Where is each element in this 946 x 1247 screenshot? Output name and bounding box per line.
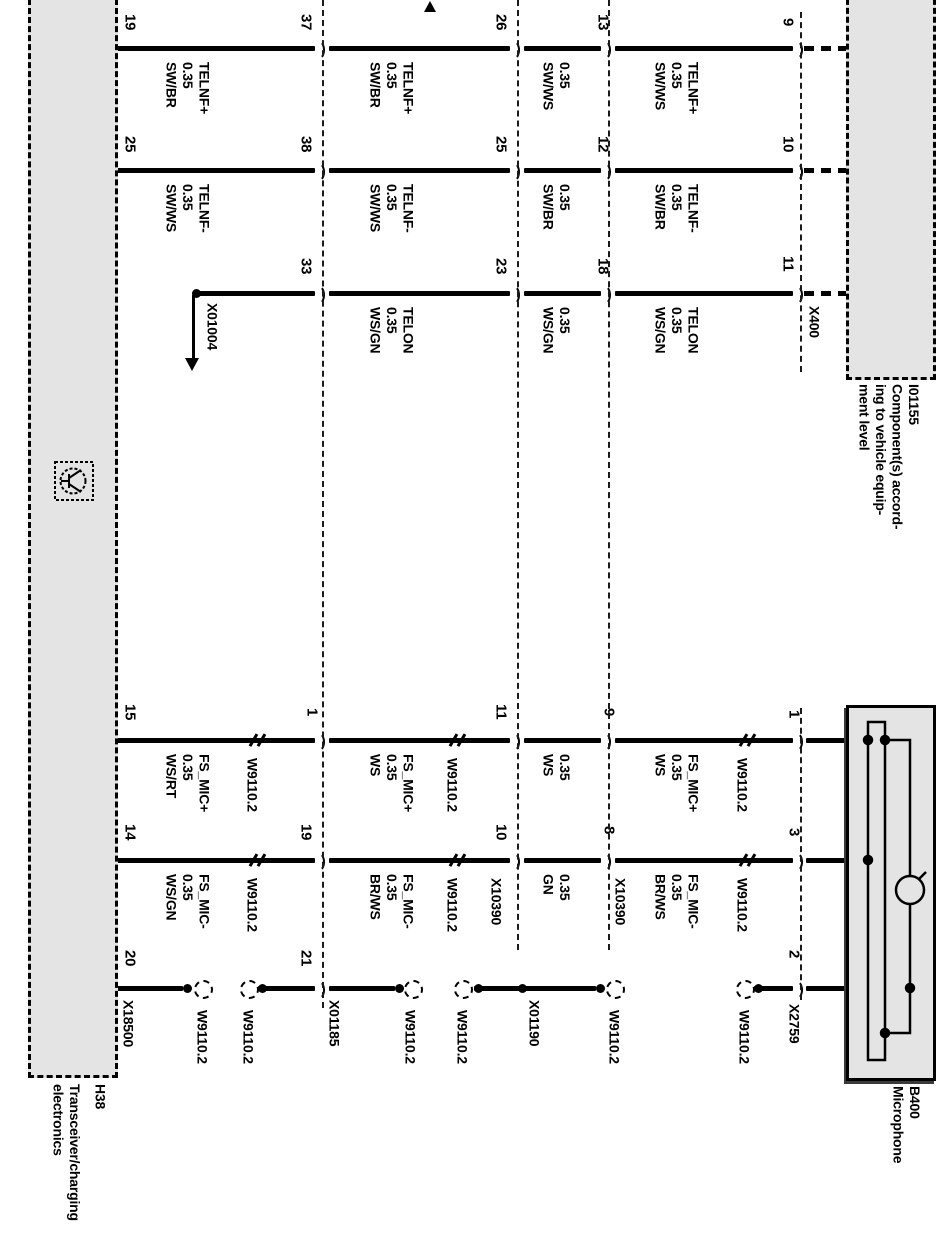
wire-segment bbox=[113, 168, 315, 173]
wire-label: 0.35 WS/GN bbox=[540, 307, 573, 353]
wire-segment bbox=[113, 858, 315, 863]
twisted-pair-label: W9110.2 bbox=[444, 758, 461, 812]
connector-line bbox=[800, 12, 802, 372]
wire-label: TELNF+ 0.35 SW/BR bbox=[163, 62, 213, 114]
shield-ring-icon bbox=[736, 980, 755, 999]
shield-ring-icon bbox=[404, 980, 423, 999]
pin-number: 38 bbox=[297, 136, 314, 152]
wire-segment bbox=[329, 46, 510, 51]
pin-number: 25 bbox=[121, 136, 138, 152]
pin-number: 19 bbox=[121, 14, 138, 30]
twisted-pair-label: W9110.2 bbox=[734, 758, 751, 812]
wire-segment bbox=[113, 738, 315, 743]
wire-segment bbox=[474, 986, 596, 991]
wire-segment bbox=[524, 291, 601, 296]
twisted-pair-label: W9110.2 bbox=[606, 1010, 623, 1064]
twisted-pair-label: W9110.2 bbox=[244, 758, 261, 812]
connector-label: X01004 bbox=[204, 303, 221, 350]
h38-code-label: H38 bbox=[92, 1084, 109, 1109]
wire-label: TELON 0.35 WS/GN bbox=[652, 307, 702, 353]
pin-number: 19 bbox=[297, 824, 314, 840]
junction-dot bbox=[395, 984, 404, 993]
pin-number: 14 bbox=[121, 824, 138, 840]
pin-number: 1 bbox=[303, 708, 320, 716]
wire-segment bbox=[329, 858, 510, 863]
shield-ring-icon bbox=[240, 980, 259, 999]
wire-segment bbox=[524, 46, 601, 51]
connector-label: X10390 bbox=[488, 878, 505, 925]
connector-label: X10390 bbox=[612, 878, 629, 925]
wire-label: TELNF- 0.35 SW/WS bbox=[367, 184, 417, 233]
shield-ring-icon bbox=[606, 980, 625, 999]
wire-segment bbox=[113, 46, 315, 51]
wire-segment bbox=[329, 986, 395, 991]
wire-dashed-stub bbox=[804, 46, 846, 51]
pin-number: 26 bbox=[492, 14, 509, 30]
wire-segment bbox=[615, 291, 793, 296]
transistor-symbol-icon bbox=[52, 459, 96, 503]
wire-segment bbox=[196, 291, 315, 296]
component-box-i01155 bbox=[846, 0, 936, 380]
wire-segment bbox=[524, 738, 601, 743]
wire-label: FS_MIC+ 0.35 WS bbox=[367, 754, 417, 812]
connector-label: X2759 bbox=[786, 1004, 803, 1043]
wire-label: 0.35 SW/BR bbox=[540, 184, 573, 230]
junction-dot bbox=[183, 984, 192, 993]
wire-label: TELNF+ 0.35 SW/BR bbox=[367, 62, 417, 114]
wire-label: FS_MIC+ 0.35 WS bbox=[652, 754, 702, 812]
h38-name-label: Transceiver/charging electronics bbox=[50, 1084, 83, 1221]
wire-segment bbox=[615, 168, 793, 173]
pin-number: 23 bbox=[492, 258, 509, 274]
wire-label: FS_MIC- 0.35 WS/GN bbox=[163, 874, 213, 929]
twisted-pair-label: W9110.2 bbox=[444, 878, 461, 932]
wiring-diagram-page: W9110.2W9110.2W9110.2W9110.2W9110.2W9110… bbox=[0, 0, 946, 1247]
twisted-pair-label: W9110.2 bbox=[244, 878, 261, 932]
connector-line bbox=[322, 0, 324, 1008]
twisted-pair-label: W9110.2 bbox=[734, 878, 751, 932]
wire-segment bbox=[615, 858, 793, 863]
pin-number: 33 bbox=[297, 258, 314, 274]
wire-segment bbox=[615, 738, 793, 743]
wire-segment bbox=[524, 858, 601, 863]
wire-segment bbox=[113, 986, 183, 991]
connector-label: X01185 bbox=[326, 1000, 343, 1046]
shield-ring-icon bbox=[194, 980, 213, 999]
x01004-arrow-shaft bbox=[192, 295, 195, 360]
twisted-pair-label: W9110.2 bbox=[454, 1010, 471, 1064]
component-box-h38 bbox=[28, 0, 118, 1078]
b400-label: B400 Microphone bbox=[890, 1086, 923, 1163]
wire-dashed-stub bbox=[804, 168, 846, 173]
i01155-label: I01155 Component(s) accord- ing to vehic… bbox=[856, 384, 922, 529]
wire-segment bbox=[329, 168, 510, 173]
wire-label: 0.35 WS bbox=[540, 754, 573, 780]
wire-segment bbox=[754, 986, 793, 991]
wire-segment bbox=[524, 168, 601, 173]
wire-label: TELNF+ 0.35 SW/WS bbox=[652, 62, 702, 114]
connector-label: X01190 bbox=[526, 1000, 543, 1046]
twisted-pair-label: W9110.2 bbox=[402, 1010, 419, 1064]
connector-line bbox=[608, 0, 610, 950]
microphone-symbol-icon bbox=[846, 705, 930, 1075]
twisted-pair-label: W9110.2 bbox=[736, 1010, 753, 1064]
wire-label: FS_MIC- 0.35 BR/WS bbox=[367, 874, 417, 929]
junction-dot bbox=[596, 984, 605, 993]
pin-number: 21 bbox=[297, 950, 314, 966]
pin-number: 20 bbox=[121, 950, 138, 966]
wire-dashed-stub bbox=[804, 291, 846, 296]
wire-label: TELON 0.35 WS/GN bbox=[367, 307, 417, 353]
pin-number: 9 bbox=[779, 18, 796, 26]
pin-number: 25 bbox=[492, 136, 509, 152]
wire-label: 0.35 GN bbox=[540, 874, 573, 900]
pin-number: 37 bbox=[297, 14, 314, 30]
wire-label: TELNF- 0.35 SW/BR bbox=[652, 184, 702, 233]
wire-segment bbox=[615, 46, 793, 51]
pin-number: 10 bbox=[492, 824, 509, 840]
wire-label: FS_MIC+ 0.35 WS/RT bbox=[163, 754, 213, 812]
wire-segment bbox=[258, 986, 315, 991]
wire-segment bbox=[329, 738, 510, 743]
wire-label: 0.35 SW/WS bbox=[540, 62, 573, 110]
shield-ring-icon bbox=[454, 980, 473, 999]
pin-number: 15 bbox=[121, 704, 138, 720]
pin-number: 10 bbox=[779, 136, 796, 152]
wire-segment bbox=[329, 291, 510, 296]
twisted-pair-label: W9110.2 bbox=[194, 1010, 211, 1064]
continuation-arrow-icon bbox=[424, 1, 436, 12]
connector-label: X400 bbox=[806, 306, 823, 338]
wire-label: TELNF- 0.35 SW/WS bbox=[163, 184, 213, 233]
connector-line bbox=[800, 708, 802, 1000]
connector-line bbox=[517, 0, 519, 950]
pin-number: 11 bbox=[492, 704, 509, 719]
twisted-pair-label: W9110.2 bbox=[240, 1010, 257, 1064]
pin-number: 11 bbox=[779, 256, 796, 271]
wire-label: FS_MIC- 0.35 BR/WS bbox=[652, 874, 702, 929]
connector-label: X18500 bbox=[120, 1000, 137, 1047]
